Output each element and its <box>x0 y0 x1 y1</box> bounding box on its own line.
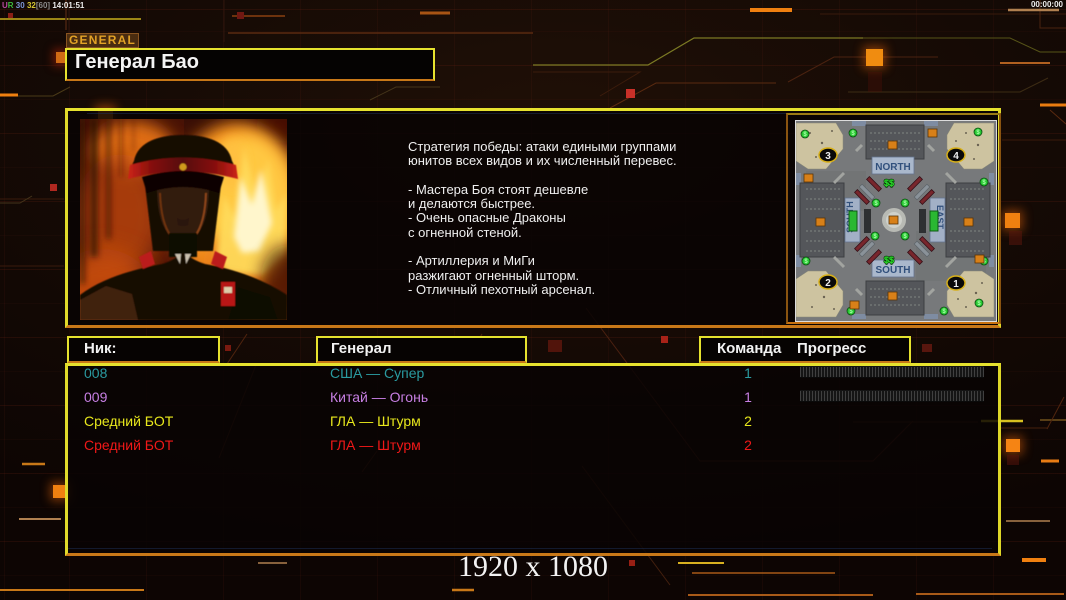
svg-text:NORTH: NORTH <box>875 162 911 173</box>
svg-text:2: 2 <box>825 278 831 289</box>
svg-text:$$: $$ <box>884 178 894 188</box>
svg-text:3: 3 <box>825 151 831 162</box>
svg-text:$$: $$ <box>884 255 894 265</box>
svg-text:1: 1 <box>953 279 959 290</box>
svg-text:4: 4 <box>953 151 959 162</box>
svg-text:SOUTH: SOUTH <box>876 265 911 276</box>
